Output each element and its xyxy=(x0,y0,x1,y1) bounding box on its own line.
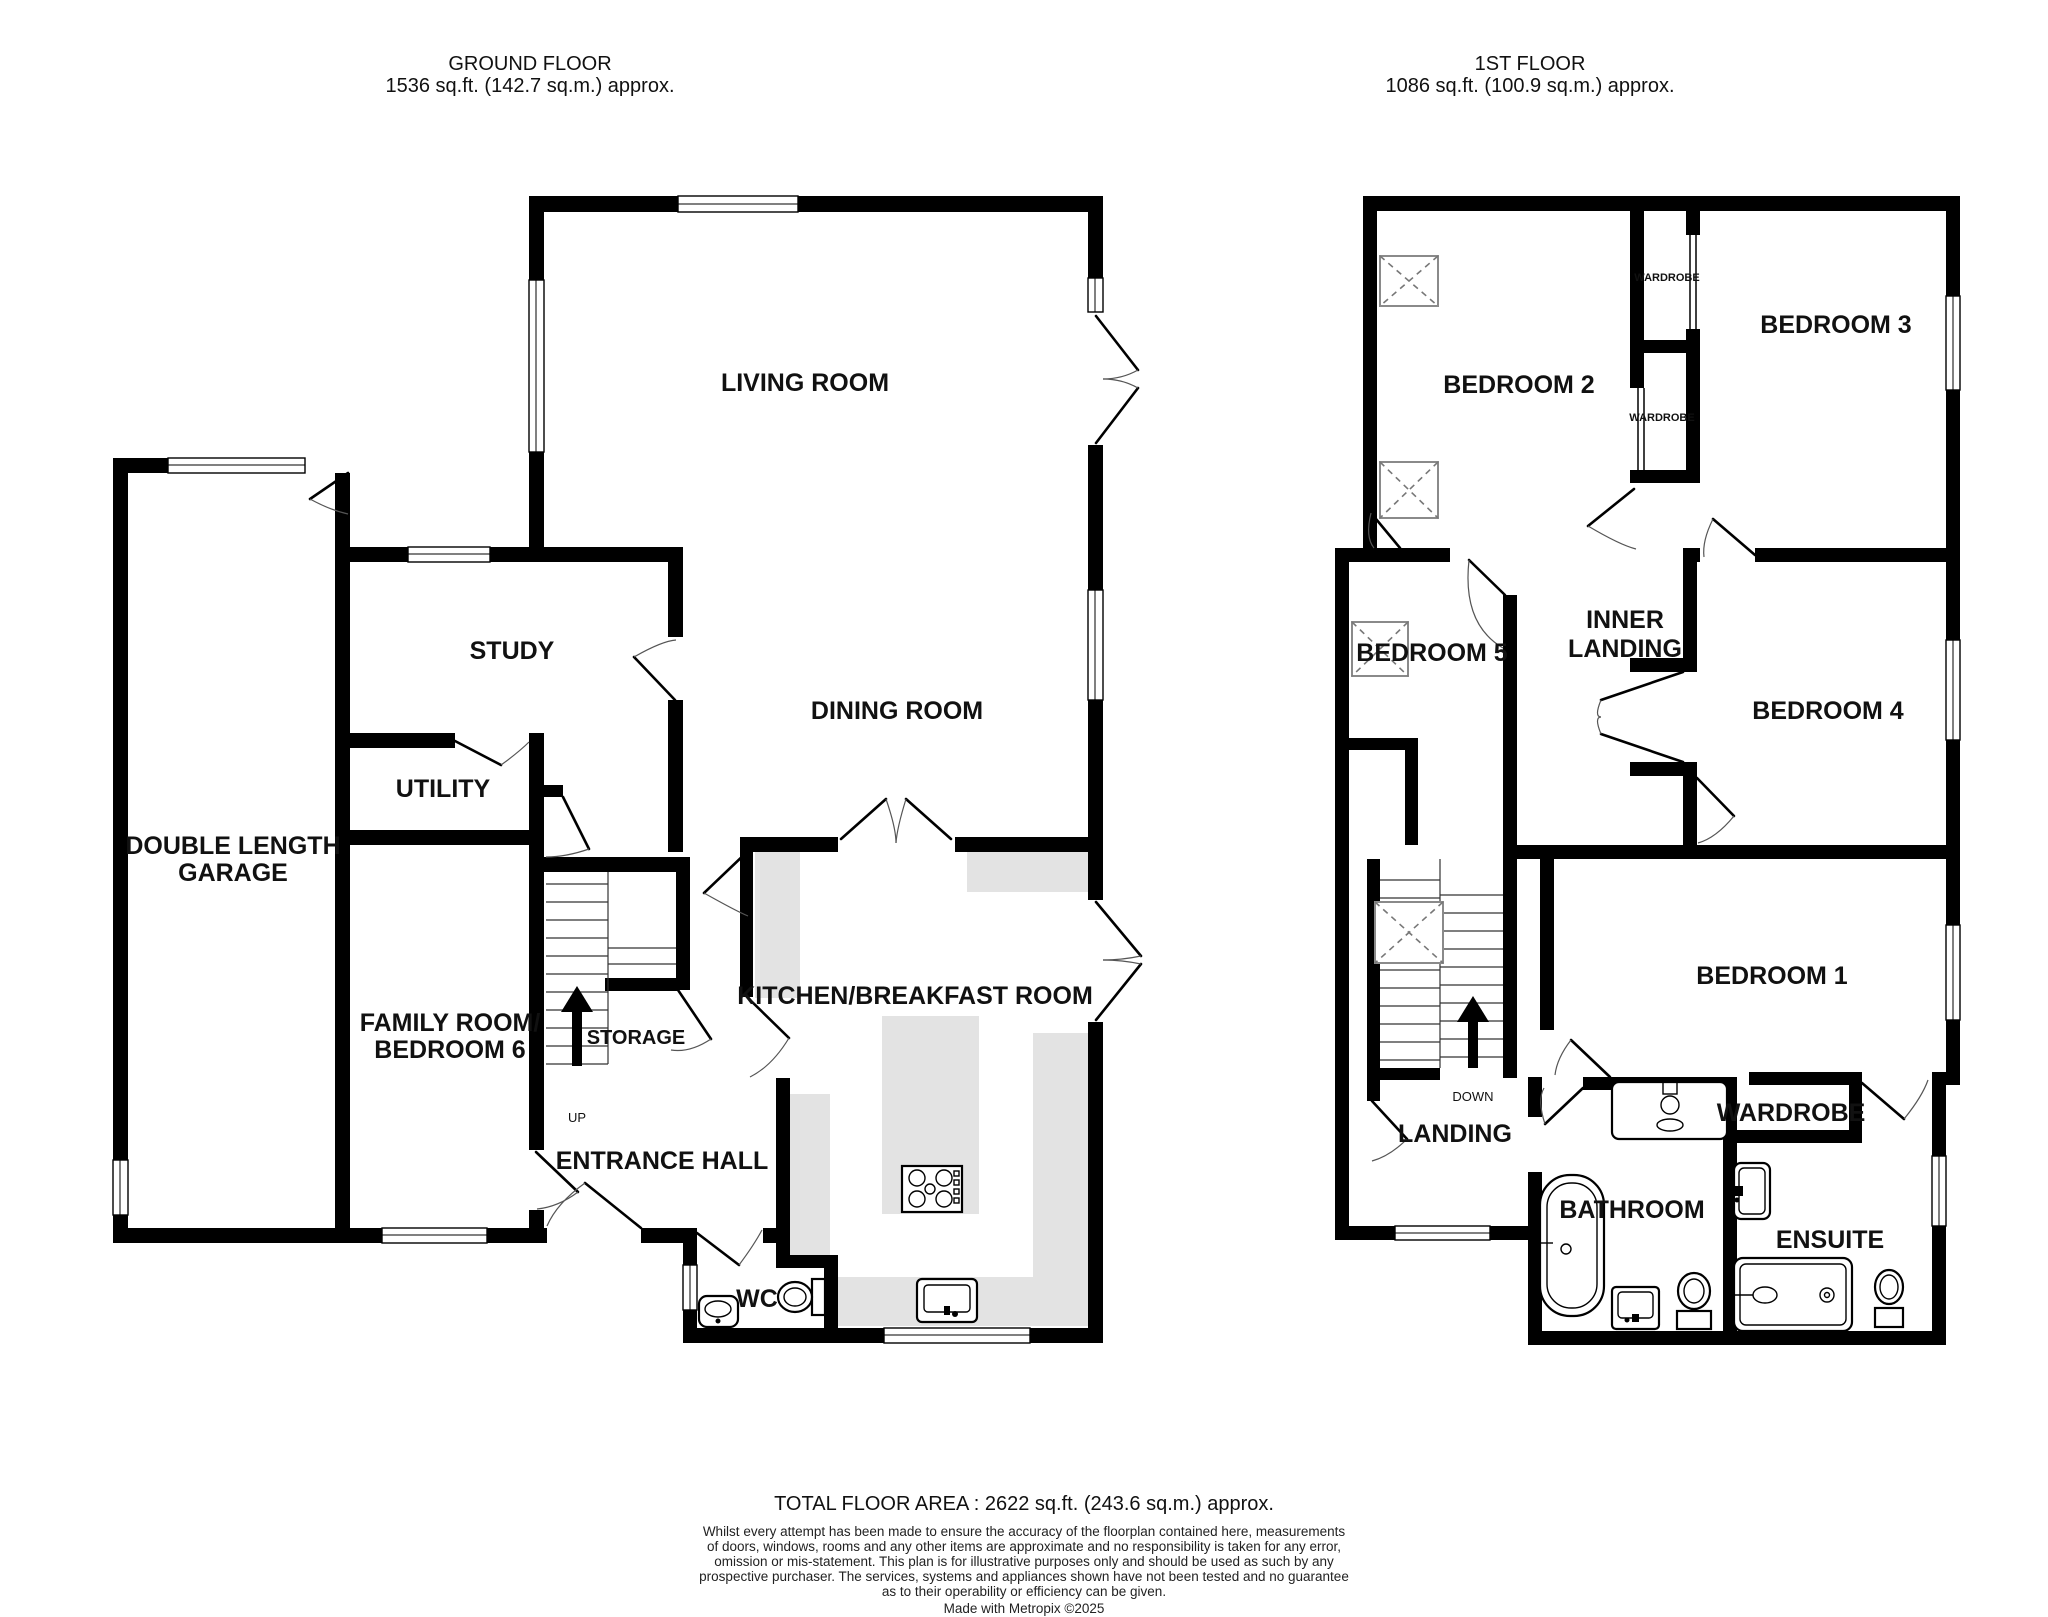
door-arc xyxy=(455,741,529,765)
skylight-icon xyxy=(1380,256,1438,306)
window xyxy=(113,1160,128,1215)
first-floor-plan: BEDROOM 2 BEDROOM 3 WARDROBE WARDROBE BE… xyxy=(1335,196,1960,1345)
room-label-wc: WC xyxy=(736,1285,778,1313)
disclaimer-line3: omission or mis-statement. This plan is … xyxy=(714,1554,1334,1569)
ff-doors xyxy=(1369,489,1928,1161)
ground-floor-area: 1536 sq.ft. (142.7 sq.m.) approx. xyxy=(385,75,674,97)
toilet-icon xyxy=(1677,1273,1711,1329)
disclaimer-line1: Whilst every attempt has been made to en… xyxy=(703,1524,1346,1539)
window xyxy=(1932,1156,1946,1226)
door-arc xyxy=(634,640,676,700)
room-label-wardrobe-small-1: WARDROBE xyxy=(1634,272,1699,284)
door-arc xyxy=(1588,489,1636,549)
ground-floor-title: GROUND FLOOR xyxy=(448,53,611,75)
window xyxy=(1946,925,1960,1020)
gf-kitchen-counters xyxy=(755,852,1088,1326)
room-label-inner-landing-line1: INNER xyxy=(1586,606,1664,634)
window xyxy=(382,1228,487,1243)
door-arc xyxy=(697,1230,762,1265)
toilet-icon xyxy=(778,1279,825,1315)
room-label-kitchen: KITCHEN/BREAKFAST ROOM xyxy=(737,982,1093,1010)
shower-icon xyxy=(1734,1258,1852,1331)
room-label-entrance-hall: ENTRANCE HALL xyxy=(556,1147,769,1175)
stairs-down-label: DOWN xyxy=(1452,1089,1493,1104)
ff-walls xyxy=(1335,196,1960,1345)
disclaimer-line2: of doors, windows, rooms and any other i… xyxy=(707,1539,1341,1554)
room-label-wardrobe-room: WARDROBE xyxy=(1717,1099,1866,1127)
door-arc xyxy=(1541,1088,1583,1124)
toilet-icon xyxy=(1875,1270,1903,1327)
plan-footer: TOTAL FLOOR AREA : 2622 sq.ft. (243.6 sq… xyxy=(699,1493,1349,1616)
door-arc xyxy=(1468,560,1505,648)
ground-floor-plan: LIVING ROOM STUDY DINING ROOM UTILITY DO… xyxy=(113,196,1141,1343)
metropix-credit: Made with Metropix ©2025 xyxy=(944,1601,1105,1616)
window xyxy=(884,1328,1030,1343)
room-label-utility: UTILITY xyxy=(396,775,491,803)
front-door-arc xyxy=(547,1183,641,1228)
room-label-bedroom3: BEDROOM 3 xyxy=(1760,311,1911,339)
room-label-family-line1: FAMILY ROOM/ xyxy=(360,1009,541,1037)
bathroom-counter-sink-icon xyxy=(1612,1082,1727,1139)
room-label-inner-landing-line2: LANDING xyxy=(1568,635,1682,663)
room-label-garage-line2: GARAGE xyxy=(178,859,288,887)
plan-headers: GROUND FLOOR 1536 sq.ft. (142.7 sq.m.) a… xyxy=(385,53,1674,97)
ff-stairs xyxy=(1375,859,1503,1068)
room-label-garage-line1: DOUBLE LENGTH xyxy=(125,832,340,860)
door-arc xyxy=(1697,778,1734,843)
double-doors xyxy=(841,799,951,843)
room-label-storage: STORAGE xyxy=(587,1027,686,1049)
door-arc xyxy=(546,797,589,857)
ensuite-sink-icon xyxy=(1734,1163,1770,1219)
first-floor-title: 1ST FLOOR xyxy=(1475,53,1586,75)
window xyxy=(168,458,305,473)
floorplan-page: LIVING ROOM STUDY DINING ROOM UTILITY DO… xyxy=(0,0,2048,1617)
room-label-wardrobe-small-2: WARDROBE xyxy=(1629,412,1694,424)
floorplan-canvas: LIVING ROOM STUDY DINING ROOM UTILITY DO… xyxy=(0,0,2048,1617)
door-arc xyxy=(1555,1040,1610,1077)
vanity-sink-icon xyxy=(1612,1287,1659,1329)
stairs-up-label: UP xyxy=(568,1110,586,1125)
door-arc xyxy=(1862,1080,1928,1119)
skylight-icon xyxy=(1375,902,1443,963)
disclaimer-line5: as to their operability or efficiency ca… xyxy=(882,1584,1166,1599)
window xyxy=(1088,278,1103,312)
room-label-bedroom4: BEDROOM 4 xyxy=(1752,697,1904,725)
room-label-bedroom1: BEDROOM 1 xyxy=(1696,962,1848,990)
window xyxy=(1088,590,1103,700)
window xyxy=(678,196,798,212)
room-label-living-room: LIVING ROOM xyxy=(721,369,889,397)
patio-doors xyxy=(1096,316,1138,443)
room-label-dining-room: DINING ROOM xyxy=(811,697,983,725)
window xyxy=(408,547,490,562)
total-floor-area: TOTAL FLOOR AREA : 2622 sq.ft. (243.6 sq… xyxy=(774,1493,1274,1515)
up-arrow xyxy=(561,986,593,1066)
first-floor-area: 1086 sq.ft. (100.9 sq.m.) approx. xyxy=(1385,75,1674,97)
disclaimer-line4: prospective purchaser. The services, sys… xyxy=(699,1569,1349,1584)
window xyxy=(529,280,544,452)
window xyxy=(683,1265,697,1310)
door-arc xyxy=(1704,519,1755,557)
window xyxy=(1946,296,1960,390)
room-label-bathroom: BATHROOM xyxy=(1559,1196,1704,1224)
room-label-bedroom2: BEDROOM 2 xyxy=(1443,371,1594,399)
room-label-study: STUDY xyxy=(470,637,555,665)
room-label-landing: LANDING xyxy=(1398,1120,1512,1148)
kitchen-sink-icon xyxy=(917,1279,977,1322)
room-label-bedroom5: BEDROOM 5 xyxy=(1356,639,1508,667)
patio-doors xyxy=(1096,902,1141,1020)
window xyxy=(1395,1226,1490,1240)
room-label-ensuite: ENSUITE xyxy=(1776,1226,1884,1254)
window xyxy=(1946,640,1960,740)
double-doors xyxy=(1598,672,1684,762)
skylight-icon xyxy=(1380,462,1438,518)
hob-icon xyxy=(902,1166,962,1212)
wc-sink-icon xyxy=(699,1296,738,1327)
room-label-family-line2: BEDROOM 6 xyxy=(374,1036,525,1064)
